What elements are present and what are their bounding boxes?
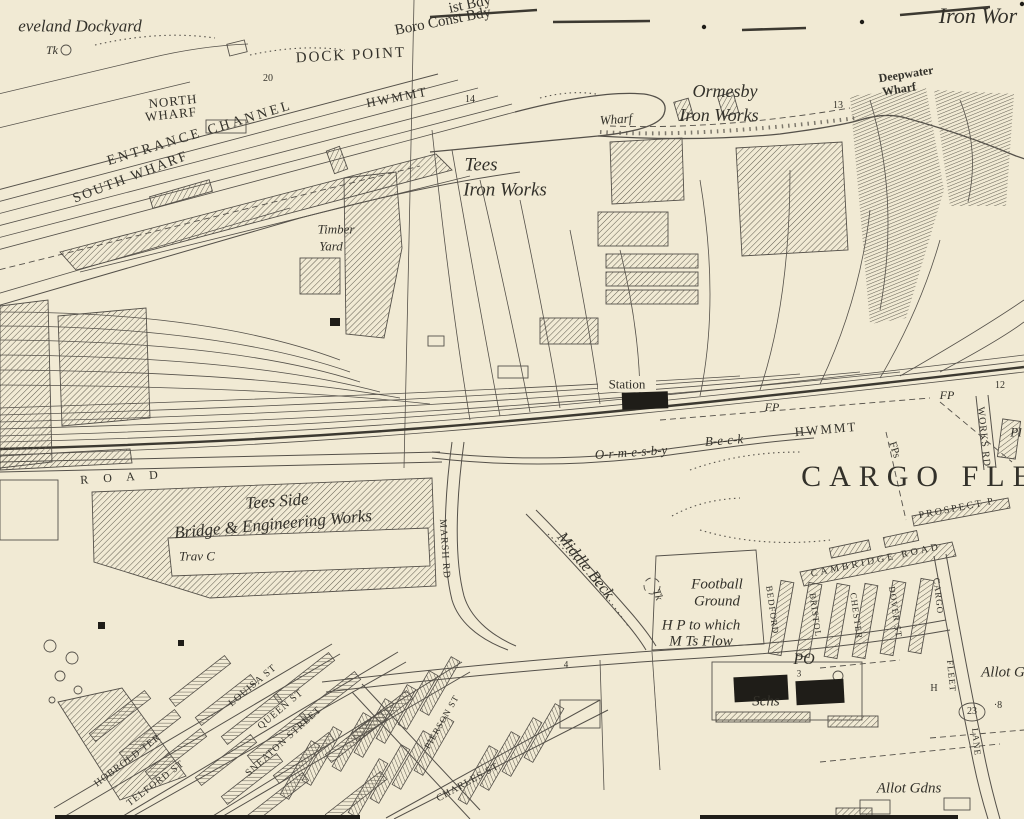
ordnance-survey-map-scan: eveland DockyardTkDOCK POINT20NORTHWHARF… — [0, 0, 1024, 819]
ormesby-beck — [432, 398, 1012, 520]
station-label-mask — [598, 376, 656, 392]
football-ground-outline — [652, 550, 764, 650]
map-linework — [0, 0, 1024, 819]
boundary-line — [404, 0, 1024, 468]
contour-dots — [672, 452, 830, 542]
middle-beck — [526, 510, 660, 650]
scan-edge-artifact — [55, 815, 958, 819]
station-building — [622, 391, 669, 410]
school-buildings — [712, 662, 878, 727]
